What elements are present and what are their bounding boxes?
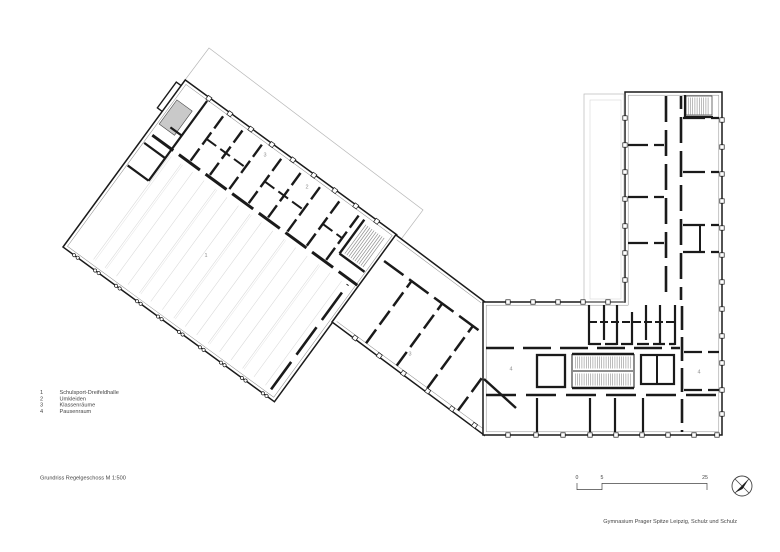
floor-plan-sheet: 3 2 1 3 4 4 1 Schulsport-Dreifeldhalle 2… [0,0,780,552]
atrium-outline [584,94,624,302]
legend-label: Umkleiden [60,396,86,402]
floor-plan-drawing: 3 2 1 3 4 4 1 Schulsport-Dreifeldhalle 2… [0,0,780,552]
legend-label: Schulsport-Dreifeldhalle [60,390,119,396]
project-attribution: Gymnasium Prager Spitze Leipzig, Schulz … [603,519,737,525]
scale-tick: 25 [702,475,708,481]
scale-bar: 0 5 25 [576,475,708,490]
scale-tick: 5 [601,475,604,481]
room-label: 4 [697,370,700,376]
room-label: 4 [509,367,512,373]
legend-number: 2 [40,396,43,402]
room-label: 2 [305,185,308,191]
legend-label: Klassenräume [60,403,96,409]
north-arrow-icon [732,476,752,496]
sports-hall-wing [57,75,397,403]
room-label: 3 [408,352,411,358]
legend-number: 3 [40,403,43,409]
legend: 1 Schulsport-Dreifeldhalle 2 Umkleiden 3… [40,390,119,415]
scale-tick: 0 [576,475,579,481]
legend-number: 4 [40,409,43,415]
scale-bar-line [577,483,707,490]
legend-number: 1 [40,390,43,396]
school-building [483,92,724,437]
room-label: 3 [263,153,266,159]
room-label: 1 [204,253,207,259]
drawing-title: Grundriss Regelgeschoss M 1:500 [40,476,126,482]
legend-label: Pausenraum [60,409,92,415]
